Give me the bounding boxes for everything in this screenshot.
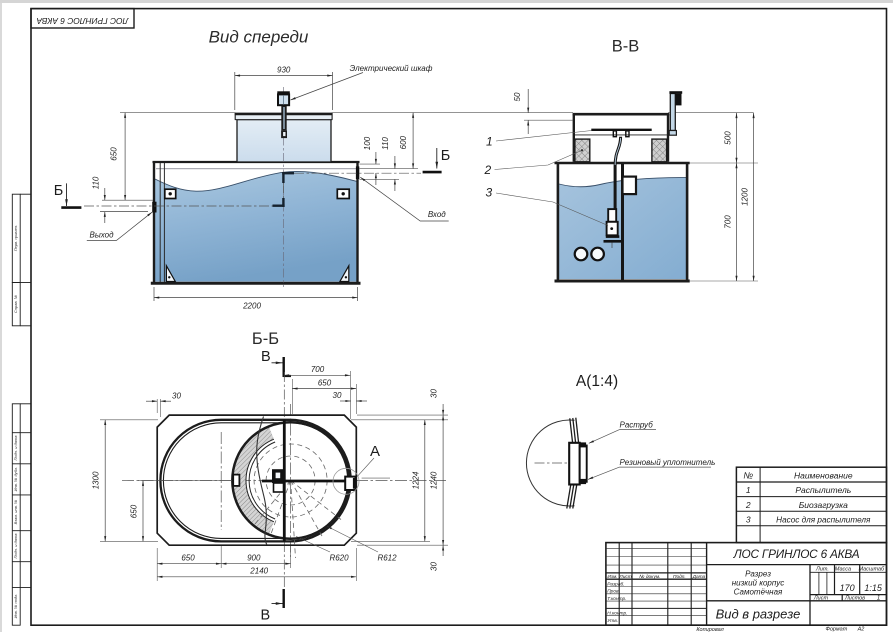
svg-text:Выход: Выход <box>89 231 114 240</box>
svg-text:1224: 1224 <box>411 471 420 489</box>
svg-text:№ докум.: № докум. <box>639 574 660 580</box>
svg-text:ЛОС ГРИНЛОС 6 АКВА: ЛОС ГРИНЛОС 6 АКВА <box>733 547 860 561</box>
svg-text:Пров.: Пров. <box>607 589 620 595</box>
svg-text:R612: R612 <box>377 554 397 563</box>
svg-text:1240: 1240 <box>430 471 439 489</box>
svg-text:Инв. № подл.: Инв. № подл. <box>13 594 18 619</box>
svg-text:Биозагрузка: Биозагрузка <box>799 500 848 510</box>
svg-text:1:15: 1:15 <box>864 583 883 593</box>
svg-text:В: В <box>261 349 271 365</box>
svg-text:2140: 2140 <box>249 567 268 576</box>
svg-text:Наименование: Наименование <box>794 471 853 481</box>
svg-text:1300: 1300 <box>92 471 101 489</box>
svg-text:100: 100 <box>363 136 372 150</box>
svg-text:30: 30 <box>172 392 181 401</box>
svg-text:30: 30 <box>430 562 439 571</box>
svg-text:110: 110 <box>92 176 101 189</box>
svg-text:30: 30 <box>430 389 439 398</box>
svg-text:Масса: Масса <box>835 567 851 573</box>
svg-text:Н.контр.: Н.контр. <box>607 611 627 617</box>
svg-text:Подп. и дата: Подп. и дата <box>13 435 18 461</box>
svg-text:Разраб.: Разраб. <box>607 581 624 587</box>
svg-text:Изм.: Изм. <box>607 574 617 580</box>
svg-text:А: А <box>370 443 380 460</box>
svg-text:А2: А2 <box>857 627 865 632</box>
svg-text:650: 650 <box>110 147 119 161</box>
svg-text:50: 50 <box>513 92 522 101</box>
svg-text:Подп.: Подп. <box>673 574 686 580</box>
svg-text:30: 30 <box>333 391 342 400</box>
svg-text:650: 650 <box>181 554 195 563</box>
svg-text:Листов: Листов <box>844 596 865 602</box>
svg-text:930: 930 <box>277 66 291 75</box>
svg-text:Лит.: Лит. <box>815 567 829 573</box>
svg-text:650: 650 <box>318 378 332 387</box>
svg-text:900: 900 <box>247 554 261 563</box>
svg-text:Б-Б: Б-Б <box>252 330 279 348</box>
svg-text:низкий корпус: низкий корпус <box>732 579 785 588</box>
svg-text:А(1:4): А(1:4) <box>576 373 618 390</box>
svg-text:Насос для распылителя: Насос для распылителя <box>776 515 871 524</box>
svg-text:Утв.: Утв. <box>607 618 618 624</box>
svg-text:Масштаб: Масштаб <box>858 567 885 573</box>
svg-text:700: 700 <box>311 365 325 374</box>
svg-text:R620: R620 <box>329 554 349 563</box>
svg-text:2: 2 <box>484 163 492 177</box>
svg-text:Вид спереди: Вид спереди <box>209 28 309 47</box>
svg-text:Подп. и дата: Подп. и дата <box>13 533 18 559</box>
svg-text:1: 1 <box>486 135 493 149</box>
svg-text:Самотёчная: Самотёчная <box>734 588 783 597</box>
svg-text:Раструб: Раструб <box>620 421 654 430</box>
svg-text:Распылитель: Распылитель <box>795 485 851 495</box>
svg-text:3: 3 <box>746 514 751 524</box>
svg-text:1: 1 <box>746 485 751 495</box>
svg-text:Копировал: Копировал <box>696 627 723 632</box>
svg-text:ЛОС ГРИНЛОС 6 АКВА: ЛОС ГРИНЛОС 6 АКВА <box>36 16 129 26</box>
svg-text:Б: Б <box>54 183 64 199</box>
svg-text:700: 700 <box>724 215 733 229</box>
svg-text:Лист: Лист <box>813 596 829 602</box>
svg-text:170: 170 <box>840 583 855 593</box>
svg-text:Дата: Дата <box>692 574 706 580</box>
svg-text:Б: Б <box>441 148 451 164</box>
svg-text:600: 600 <box>399 135 408 149</box>
svg-text:500: 500 <box>724 131 733 145</box>
svg-text:Вход: Вход <box>428 210 446 219</box>
svg-text:Вид в разрезе: Вид в разрезе <box>716 607 801 622</box>
svg-text:Т.контр.: Т.контр. <box>607 596 626 602</box>
svg-text:110: 110 <box>381 137 390 150</box>
svg-text:3: 3 <box>486 186 493 200</box>
svg-text:2200: 2200 <box>242 302 261 311</box>
svg-text:Электрический шкаф: Электрический шкаф <box>350 64 433 73</box>
svg-text:В-В: В-В <box>612 38 640 56</box>
svg-text:Формат: Формат <box>825 627 847 632</box>
svg-text:1: 1 <box>877 596 880 602</box>
svg-text:В: В <box>261 608 271 624</box>
svg-text:650: 650 <box>129 504 138 518</box>
svg-text:Взам. инв. №: Взам. инв. № <box>13 499 18 524</box>
svg-text:Разрез: Разрез <box>745 570 771 579</box>
svg-text:№: № <box>743 471 753 481</box>
svg-text:Справ. №: Справ. № <box>13 294 18 313</box>
svg-text:1200: 1200 <box>741 188 750 206</box>
svg-text:Лист: Лист <box>618 574 631 580</box>
svg-text:Резиновый уплотнитель: Резиновый уплотнитель <box>620 458 716 467</box>
svg-text:2: 2 <box>745 500 751 510</box>
svg-text:Инв. № дубл.: Инв. № дубл. <box>13 467 18 492</box>
svg-text:Перв. примен.: Перв. примен. <box>13 225 18 252</box>
